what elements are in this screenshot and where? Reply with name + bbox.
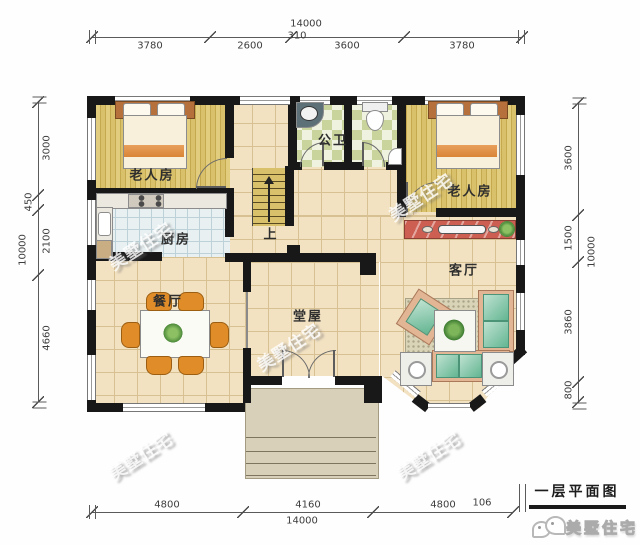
- side-table-ornament: [408, 361, 426, 379]
- window: [87, 118, 96, 180]
- sofa-cushion: [483, 294, 509, 321]
- tick: [572, 209, 584, 221]
- wall: [225, 96, 234, 158]
- extension-mark: [518, 30, 525, 44]
- title-underline: [529, 505, 626, 509]
- corner-sink: [388, 148, 402, 165]
- stairs-direction-line: [268, 182, 270, 222]
- extension-mark: [33, 97, 47, 104]
- dim-segment: 2100: [42, 228, 53, 253]
- brand-name: 美墅住宅: [566, 517, 638, 538]
- window: [516, 293, 525, 330]
- wall: [243, 348, 251, 403]
- porch-step: [246, 451, 376, 452]
- sliding-opening: [246, 292, 248, 348]
- bed-mattress: [123, 115, 187, 169]
- dim-total-top: 14000: [290, 19, 322, 30]
- wall: [324, 162, 364, 170]
- dining-table-plant: [162, 322, 184, 344]
- porch: [245, 388, 379, 479]
- porch-step: [246, 437, 376, 438]
- tick: [398, 31, 410, 43]
- dim-segment: 3600: [334, 41, 359, 52]
- wall: [436, 208, 525, 217]
- bed-blanket: [124, 145, 184, 157]
- dim-segment: 800: [564, 380, 575, 399]
- bed-mattress: [436, 115, 500, 169]
- extension-mark: [573, 98, 587, 105]
- speaker: [422, 226, 433, 233]
- door-leaf: [196, 186, 226, 188]
- dim-total-left: 10000: [18, 234, 29, 266]
- brand-logo-icon: [545, 516, 566, 535]
- window: [516, 115, 525, 175]
- brand-logo-dot: [538, 526, 541, 529]
- dimension-line-right: [578, 103, 579, 403]
- window: [87, 355, 96, 400]
- tick: [572, 256, 584, 268]
- window: [123, 403, 205, 412]
- plant-pot: [499, 221, 515, 237]
- speaker: [488, 226, 499, 233]
- room-label-bedroom-left: 老人房: [129, 165, 174, 184]
- dim-segment: 3780: [137, 41, 162, 52]
- brand-logo-dot: [551, 522, 554, 525]
- side-table-ornament: [490, 361, 508, 379]
- wall: [205, 403, 245, 412]
- dim-segment: 1500: [564, 225, 575, 250]
- porch-step: [246, 475, 376, 476]
- dim-segment: 4800: [430, 500, 455, 511]
- dim-offset-top: 310: [287, 31, 306, 42]
- floor-plan-sheet: 老人房 厨房 公卫 老人房 上 餐厅 客厅 堂屋 美墅住宅 美墅住宅 美墅住宅 …: [0, 0, 640, 545]
- wall: [87, 96, 96, 118]
- dim-segment: 4660: [42, 325, 53, 350]
- coffee-table-plant: [442, 318, 466, 342]
- dim-segment: 3860: [564, 309, 575, 334]
- sofa-cushion: [436, 354, 459, 378]
- extension-mark: [573, 403, 587, 410]
- wall: [243, 262, 251, 292]
- tv: [438, 225, 486, 234]
- dining-chair: [146, 356, 172, 375]
- bed-blanket: [437, 145, 497, 157]
- dim-segment: 3000: [42, 135, 53, 160]
- basin: [300, 106, 318, 121]
- porch-step: [246, 463, 376, 464]
- tick: [204, 31, 216, 43]
- dining-chair: [121, 322, 140, 348]
- wall: [285, 166, 294, 226]
- wall: [364, 376, 382, 403]
- wall: [87, 403, 123, 412]
- tick: [367, 506, 379, 518]
- wall: [87, 310, 96, 355]
- dim-segment: 4800: [154, 500, 179, 511]
- window: [240, 96, 290, 105]
- extension-mark: [89, 505, 96, 519]
- dimension-line-bottom: [92, 512, 513, 513]
- extension-mark: [33, 402, 47, 409]
- dining-chair: [178, 356, 204, 375]
- watermark-text: 美墅住宅: [103, 425, 177, 485]
- wall: [287, 245, 300, 254]
- extension-mark: [519, 484, 526, 512]
- entrance-door-leaf: [333, 350, 335, 377]
- wall: [516, 96, 525, 115]
- stove: [128, 194, 164, 208]
- wall: [87, 245, 96, 280]
- dimension-line-left: [38, 102, 39, 402]
- dimension-line-top: [92, 37, 522, 38]
- dim-segment: 4160: [295, 500, 320, 511]
- tick: [507, 506, 519, 518]
- dining-chair: [210, 322, 229, 348]
- extension-mark: [89, 30, 96, 44]
- dim-segment: 450: [24, 192, 35, 211]
- wall: [516, 265, 525, 293]
- stairs-arrowhead-icon: [264, 176, 274, 184]
- wall: [225, 253, 376, 262]
- room-label-bathroom: 公卫: [318, 130, 348, 149]
- stairs-up-label: 上: [263, 224, 278, 243]
- dim-segment: 2600: [237, 41, 262, 52]
- sofa-cushion: [459, 354, 482, 378]
- tick: [32, 269, 44, 281]
- watermark-text: 美墅住宅: [391, 425, 465, 485]
- room-label-dining: 餐厅: [153, 291, 183, 310]
- dim-offset-bottom: 106: [472, 498, 491, 509]
- window: [516, 240, 525, 265]
- window: [87, 280, 96, 310]
- door-leaf: [362, 142, 364, 166]
- bay-window: [428, 403, 470, 411]
- sofa-cushion: [483, 321, 509, 348]
- dim-segment: 3780: [449, 41, 474, 52]
- wall: [360, 262, 376, 275]
- room-label-living: 客厅: [449, 260, 479, 279]
- tick: [237, 506, 249, 518]
- dim-segment: 3600: [564, 145, 575, 170]
- dim-total-right: 10000: [587, 236, 598, 268]
- plan-title: 一层平面图: [535, 481, 620, 501]
- window: [87, 200, 96, 245]
- kitchen-sink: [98, 212, 111, 236]
- dim-total-bottom: 14000: [286, 516, 318, 527]
